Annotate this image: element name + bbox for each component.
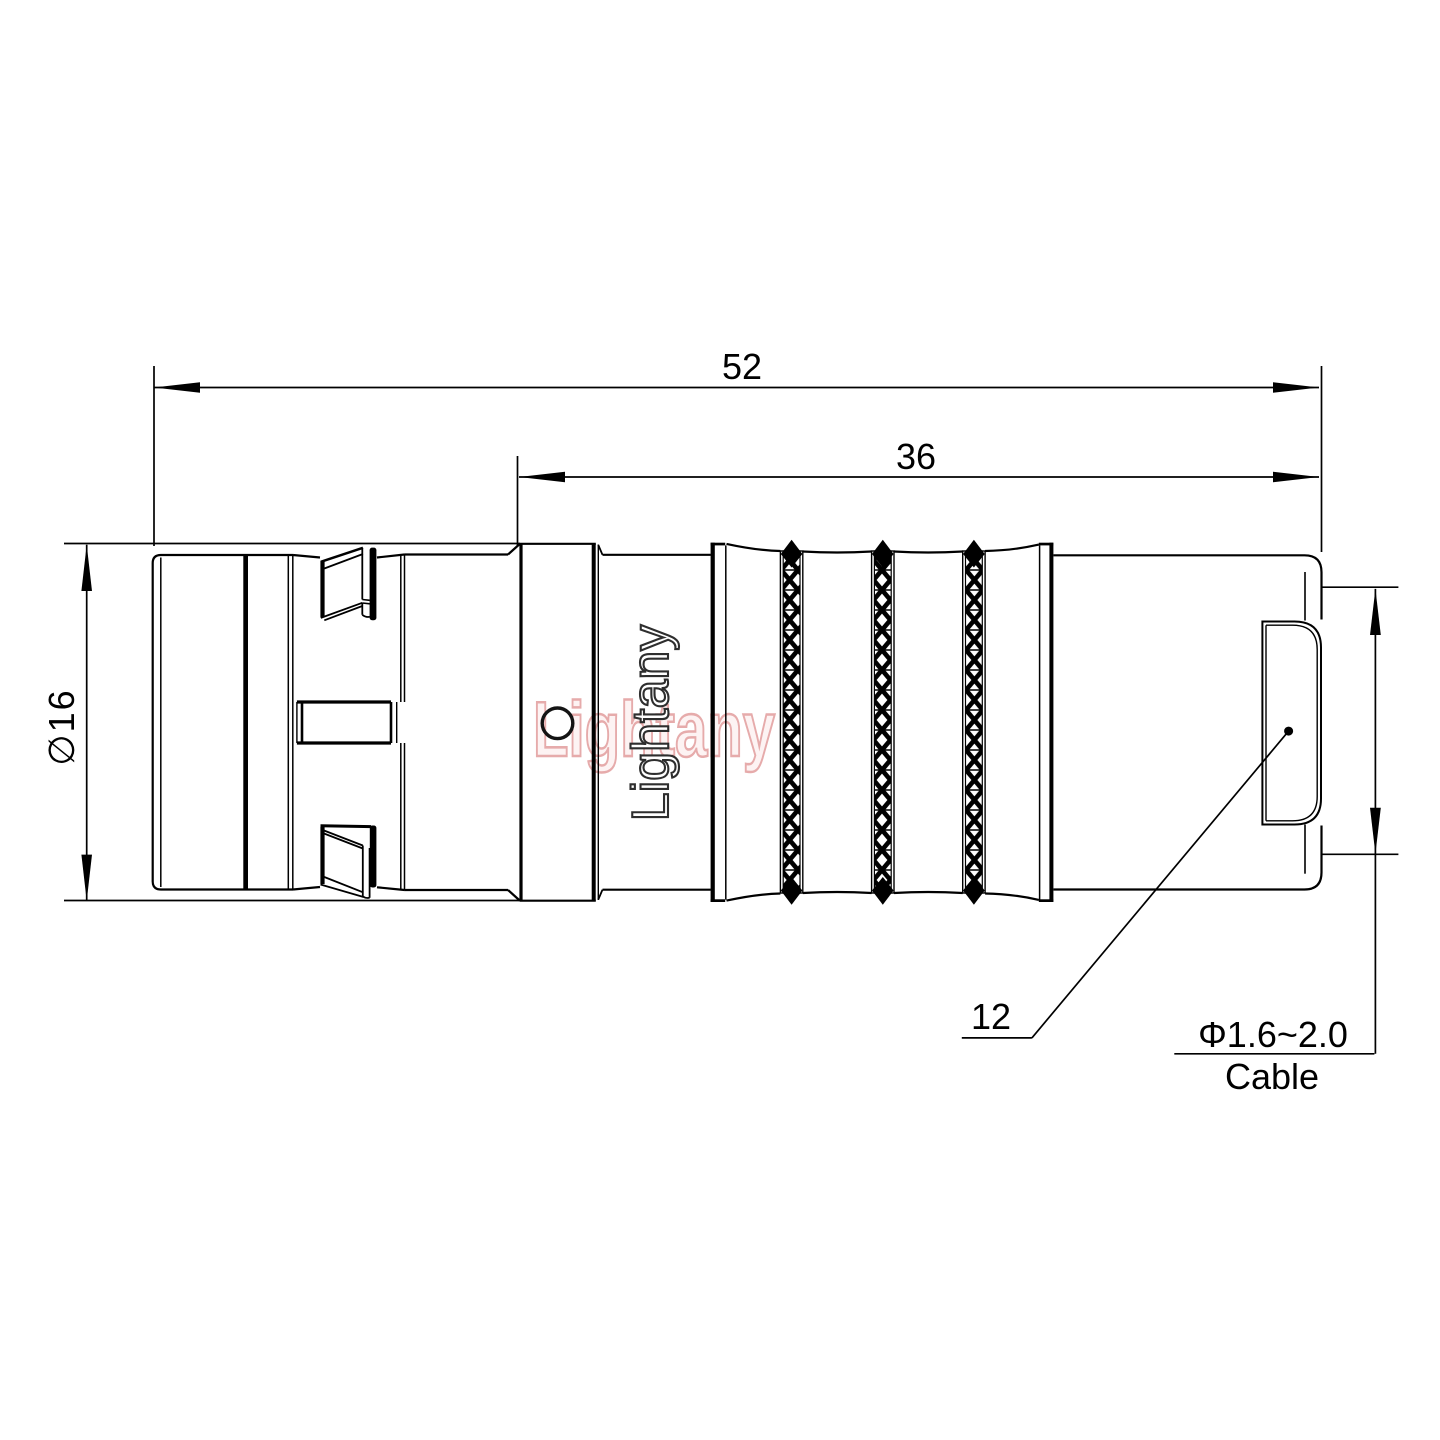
svg-text:12: 12 [971, 996, 1011, 1037]
svg-text:∅16: ∅16 [41, 688, 82, 765]
svg-text:Φ1.6~2.0: Φ1.6~2.0 [1198, 1014, 1348, 1055]
svg-text:52: 52 [722, 346, 762, 387]
svg-text:Cable: Cable [1225, 1056, 1319, 1097]
svg-text:Lightany: Lightany [622, 625, 680, 822]
svg-text:36: 36 [896, 436, 936, 477]
